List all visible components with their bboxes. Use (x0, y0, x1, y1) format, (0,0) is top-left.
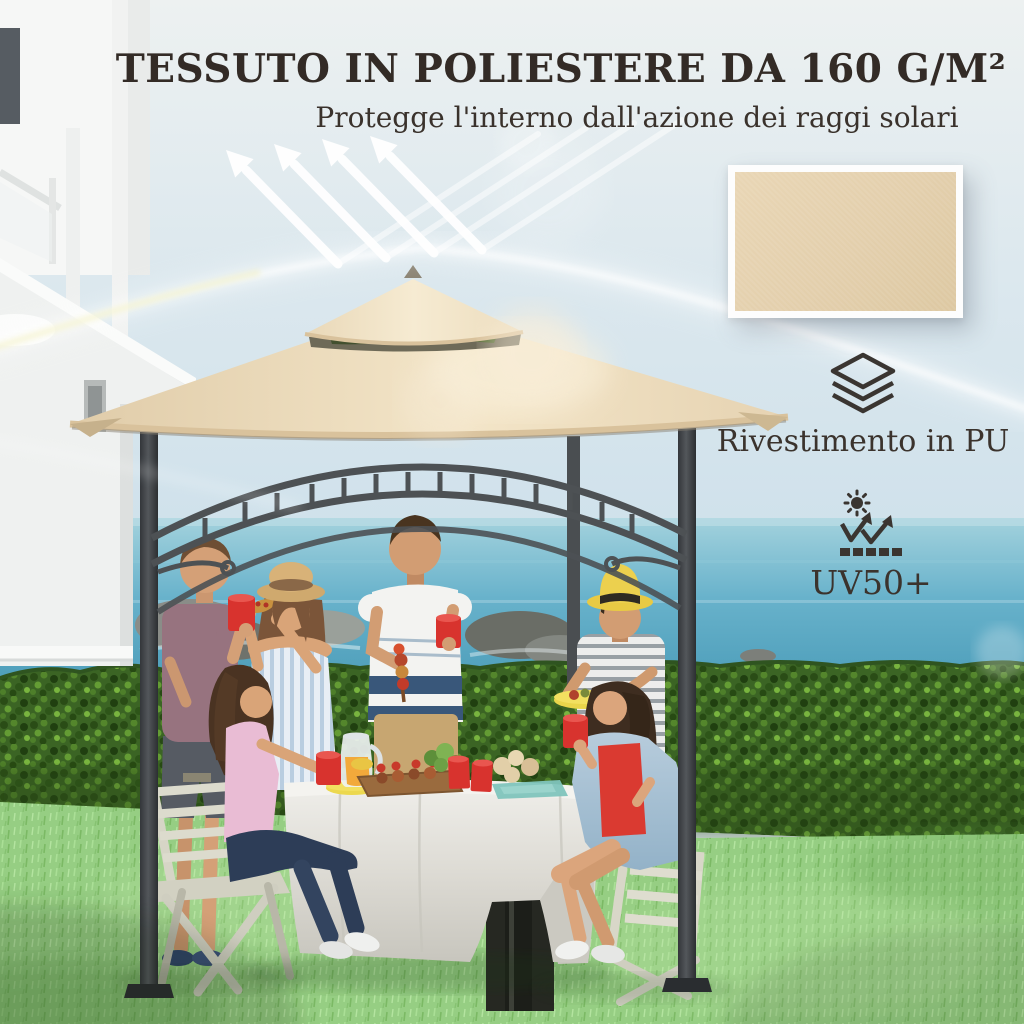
feature-label-uv: UV50+ (771, 564, 971, 602)
fabric-swatch (728, 165, 963, 318)
page-subtitle: Protegge l'interno dall'azione dei raggi… (250, 99, 1024, 137)
product-infographic: TESSUTO IN POLIESTERE DA 160 G/M² Proteg… (0, 0, 1024, 1024)
uv-reflection-icon (837, 488, 905, 560)
feature-label-pu: Rivestimento in PU (703, 424, 1023, 460)
page-title: TESSUTO IN POLIESTERE DA 160 G/M² (98, 46, 1024, 92)
fabric-weave-texture (735, 172, 956, 311)
feature-pu-coating: Rivestimento in PU (703, 352, 1023, 460)
layers-icon (829, 352, 897, 418)
feature-uv-protection: UV50+ (771, 488, 971, 602)
